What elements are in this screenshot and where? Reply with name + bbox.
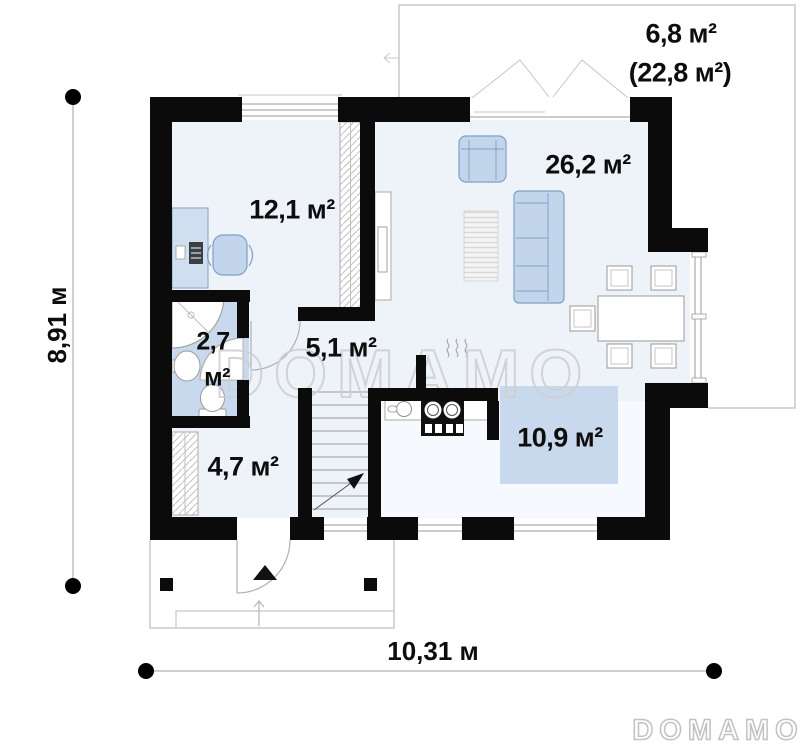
bathroom-area-unit: м² [204,366,230,391]
floor-plan-canvas: DOMAMO 6,8 м² (22,8 м²) 12, [0,0,800,751]
dining-chair-inner [611,270,628,286]
porch-step-line [176,611,394,628]
terrace-french-doors [470,60,630,120]
brand-logo: DOMAMO [632,717,800,746]
height-dimension-label: 8,91 м [44,286,70,363]
window-bottom-stairwell [324,519,367,538]
wall-exterior-bottom-a [150,517,237,540]
dim-dot [65,578,81,594]
window-office-top [238,95,342,120]
wall-bay-top-step [648,228,708,252]
dining-chair-inner [655,270,672,286]
hall-area-label: 5,1 м² [306,335,377,362]
dining-table [598,296,684,341]
sofa [514,191,564,303]
porch-post-left [160,578,173,591]
tv-stand [375,192,391,300]
window-bottom-kitchen-wide [514,519,597,538]
office-chair [213,235,247,275]
width-dimension-label: 10,31 м [387,638,479,664]
bathroom-area-value: 2,7 [196,330,229,355]
desk-paper [176,246,185,259]
living-area-label: 26,2 м² [545,152,631,179]
wall-kitchen-left [368,401,381,517]
wardrobe-entry [172,432,198,515]
dining-chair-inner [611,348,628,364]
armchair [459,136,506,182]
dining-chair-inner [655,348,672,364]
wall-kitchen-stub [416,355,426,388]
window-bottom-kitchen [418,519,462,538]
dim-dot [65,89,81,105]
entrance-marker-triangle [253,565,277,580]
wardrobe-office [340,122,361,308]
rug [464,211,498,281]
terrace-total-area-label: (22,8 м²) [629,60,732,87]
wall-exterior-left [150,97,172,540]
window-bay-right [690,252,708,383]
wall-bathroom-bottom [172,416,250,428]
wall-bay-bottom-step [645,383,708,408]
wall-exterior-top-a [150,97,242,122]
porch-outline [150,540,394,628]
dim-dot [706,663,722,679]
wall-exterior-bottom-c [367,517,418,540]
porch-up-arrow [254,601,264,626]
wall-exterior-bottom-d [462,517,514,540]
porch-post-right [364,578,377,591]
entrance-porch [150,540,394,628]
entry-area-label: 4,7 м² [208,454,279,481]
office-area-label: 12,1 м² [249,197,335,224]
terrace-area-label: 6,8 м² [646,21,717,48]
kitchen-area-label: 10,9 м² [517,425,603,452]
french-door-leaves [472,60,628,98]
wall-exterior-bottom-e [597,517,670,540]
wall-bathroom-right-upper [237,290,249,338]
wall-exterior-top-b [338,97,470,122]
wall-exterior-bottom-b [290,517,324,540]
wall-stairs-left [298,388,312,517]
wall-kitchen-piece [487,401,499,440]
entrance-door-swing [237,540,290,593]
dining-chair-inner [574,310,591,327]
wall-kitchen-top [368,388,498,401]
wall-hall-top [298,307,375,321]
dim-dot [138,663,154,679]
wall-office-right [360,120,375,312]
